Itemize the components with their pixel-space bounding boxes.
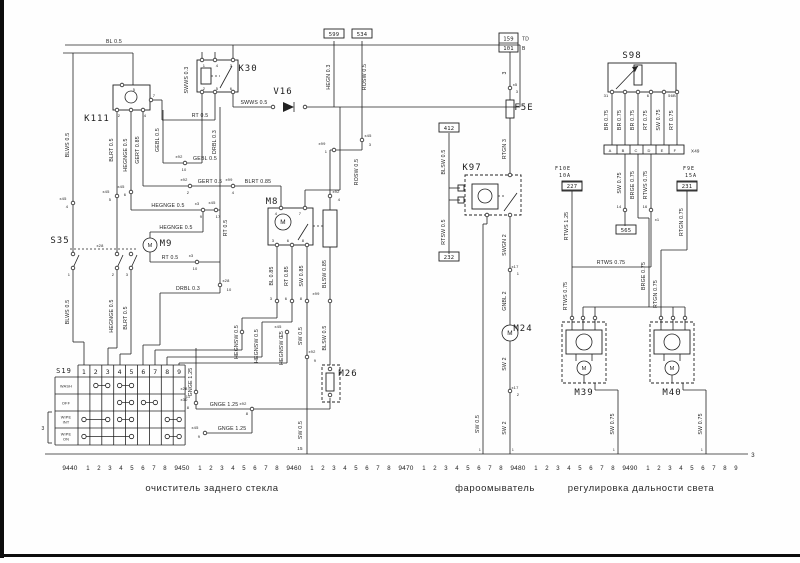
wire-label: SW 0.75 bbox=[610, 413, 616, 434]
pin-label: x45 bbox=[274, 324, 282, 329]
s19-row-label: OFF bbox=[62, 402, 71, 406]
wire-label: ROSW 0.5 bbox=[362, 64, 368, 90]
junction-box-side: TD bbox=[522, 37, 529, 43]
connector bbox=[508, 86, 512, 90]
wire-label: RTWS 0.75 bbox=[597, 260, 626, 266]
pin bbox=[213, 58, 217, 62]
track-minor: 8 bbox=[387, 466, 391, 472]
track-minor: 6 bbox=[141, 466, 145, 472]
wire-label: SW 2 bbox=[502, 357, 508, 370]
wire-label: DRBL 0.3 bbox=[176, 286, 200, 292]
connector bbox=[183, 161, 187, 165]
wire-label: SW 2 bbox=[502, 421, 508, 434]
pin-label: x92 bbox=[308, 349, 316, 354]
pin bbox=[328, 367, 332, 371]
s19-col-header: 9 bbox=[177, 368, 181, 376]
pin-label: x99 bbox=[225, 177, 233, 182]
pin-label: 3 bbox=[270, 296, 273, 301]
s19-contact bbox=[106, 383, 110, 387]
pin-label: 4 bbox=[144, 113, 147, 118]
component-label-S19: S19 bbox=[56, 367, 72, 375]
track-minor: 1 bbox=[86, 466, 90, 472]
wire-label: HEGNGE 0.5 bbox=[151, 203, 184, 209]
pin-label: 18 bbox=[279, 333, 284, 338]
pin-label: x1 bbox=[655, 217, 660, 222]
wire-label: BR 0.75 bbox=[604, 110, 610, 130]
pin-label: x28 bbox=[180, 386, 188, 391]
wire-label: SW 0.5 bbox=[298, 421, 304, 439]
pin-label: 4 bbox=[275, 211, 278, 216]
ref-box-label: 565 bbox=[621, 228, 632, 234]
pin-label: 8 bbox=[302, 238, 305, 243]
wiring-diagram: MMMMMABCDEFX49K111K30V16S35M9M8M26S19K97… bbox=[0, 0, 800, 558]
connector bbox=[195, 260, 199, 264]
pin-label: x28 bbox=[96, 243, 104, 248]
component-label-M9: M9 bbox=[160, 239, 173, 249]
wire-label: HEGNGE 0.5 bbox=[123, 138, 129, 171]
pin-label: 4 bbox=[66, 204, 69, 209]
component-label-M24: M24 bbox=[513, 324, 532, 334]
track-minor: 7 bbox=[600, 466, 604, 472]
pin-label: 6 bbox=[124, 192, 127, 197]
wire-label: BLSW 0.5 bbox=[322, 326, 328, 351]
s19-row-label: ON bbox=[63, 438, 69, 442]
pin bbox=[71, 266, 75, 270]
pin bbox=[275, 243, 279, 247]
pin-label: 56B bbox=[668, 93, 676, 98]
pin bbox=[305, 243, 309, 247]
wire-label: GEBL 0.5 bbox=[193, 156, 217, 162]
pin-label: 6 bbox=[647, 93, 650, 98]
track-minor: 6 bbox=[701, 466, 705, 472]
pin bbox=[593, 316, 597, 320]
pin bbox=[290, 243, 294, 247]
scan-edge-bottom bbox=[0, 554, 800, 557]
pin bbox=[71, 252, 75, 256]
wire-label: HEGNGE 0.5 bbox=[109, 299, 115, 332]
ref-box-label: 412 bbox=[444, 126, 455, 132]
pin bbox=[271, 105, 275, 109]
connector bbox=[649, 208, 653, 212]
connector bbox=[129, 190, 133, 194]
wire-label: BRGE 0.75 bbox=[630, 171, 636, 199]
pin-label: x17 bbox=[511, 385, 519, 390]
s19-col-header: 6 bbox=[141, 368, 145, 376]
pin bbox=[662, 90, 666, 94]
s19-row-label: WIPE bbox=[61, 433, 72, 437]
pin-label: 7 bbox=[299, 211, 302, 216]
pin-label: 9 bbox=[200, 214, 203, 219]
s19-contact bbox=[117, 383, 121, 387]
track-minor: 1 bbox=[310, 466, 314, 472]
track-minor: 3 bbox=[444, 466, 448, 472]
wire-label: SW 0.5 bbox=[298, 327, 304, 345]
component-label-M8: M8 bbox=[266, 197, 279, 207]
track-minor: 6 bbox=[365, 466, 369, 472]
track-end-mark: 3 bbox=[751, 453, 755, 459]
track-minor: 3 bbox=[556, 466, 560, 472]
track-decade: 9480 bbox=[510, 465, 525, 472]
wire-label: SWGN 2 bbox=[502, 234, 508, 256]
wire-label: RTGN 0.75 bbox=[653, 280, 659, 308]
wire bbox=[220, 66, 232, 88]
s19-contact bbox=[129, 417, 133, 421]
pin-label: x17 bbox=[511, 264, 519, 269]
track-minor: 8 bbox=[499, 466, 503, 472]
pin bbox=[279, 206, 283, 210]
pin-label: 5 bbox=[133, 87, 136, 92]
pin-label: 2 bbox=[118, 113, 121, 118]
wire-label: RT 0.75 bbox=[643, 110, 649, 130]
motor-M39-letter: M bbox=[582, 366, 587, 372]
track-minor: 5 bbox=[242, 466, 246, 472]
pin-label: 8 bbox=[246, 411, 249, 416]
relay-K30-coil bbox=[201, 68, 211, 84]
connector bbox=[332, 148, 336, 152]
pin-label: 16 bbox=[643, 204, 648, 209]
strip-label: X49 bbox=[691, 149, 700, 154]
motor-M9-letter: M bbox=[148, 243, 153, 249]
s19-col-header: 7 bbox=[153, 368, 157, 376]
ref-box-label: 534 bbox=[357, 32, 368, 38]
track-minor: 2 bbox=[657, 466, 661, 472]
track-minor: 6 bbox=[589, 466, 593, 472]
s19-contact bbox=[117, 417, 121, 421]
pin-label: 8 bbox=[187, 405, 190, 410]
wire-label: BLSW 0.5 bbox=[441, 150, 447, 175]
pin-label: 7 bbox=[153, 93, 156, 98]
wire-label: 3 bbox=[502, 71, 508, 74]
pin-label: 1 bbox=[203, 63, 206, 68]
pin bbox=[231, 58, 235, 62]
pin bbox=[649, 90, 653, 94]
track-minor: 7 bbox=[488, 466, 492, 472]
wire-label: SW 0.75 bbox=[698, 413, 704, 434]
pin bbox=[683, 316, 687, 320]
track-minor: 2 bbox=[209, 466, 213, 472]
component-label-F5E: F5E bbox=[514, 103, 533, 113]
wire-label: RTWS 0.75 bbox=[563, 282, 569, 311]
component-label-M39: M39 bbox=[574, 388, 593, 398]
track-mark: 1 bbox=[512, 448, 514, 452]
wire-label: RT 0.5 bbox=[162, 255, 179, 261]
connector-strip bbox=[604, 145, 684, 154]
connector bbox=[328, 194, 332, 198]
pin-label: x99 bbox=[318, 141, 326, 146]
track-decade: 9440 bbox=[62, 465, 77, 472]
pin-label: 3 bbox=[126, 272, 129, 277]
track-minor: 3 bbox=[332, 466, 336, 472]
relay-K97-motor bbox=[478, 189, 492, 203]
wire-label: SW 0.85 bbox=[299, 265, 305, 286]
wire-label: SW 0.75 bbox=[656, 109, 662, 130]
pin-label: 3 bbox=[369, 142, 372, 147]
track-decade: 9490 bbox=[622, 465, 637, 472]
component-label-S35: S35 bbox=[50, 236, 69, 246]
pin-label: x45 bbox=[208, 200, 216, 205]
fuse-F5E-symbol bbox=[506, 100, 514, 118]
wire-label: BR 0.75 bbox=[617, 110, 623, 130]
wire-label: HEGNSW 0.5 bbox=[254, 329, 260, 363]
pin bbox=[115, 252, 119, 256]
pin-label: 2 bbox=[517, 392, 520, 397]
connector bbox=[360, 138, 364, 142]
wire-label: GNBL 2 bbox=[502, 291, 508, 310]
component-label-10A: 10A bbox=[559, 173, 571, 179]
diode-V16 bbox=[283, 102, 294, 112]
component-label-S98: S98 bbox=[622, 51, 641, 61]
pin bbox=[485, 213, 489, 217]
wire-label: HEGNGE 0.5 bbox=[159, 225, 192, 231]
pin-label: x45 bbox=[102, 189, 110, 194]
track-minor: 7 bbox=[712, 466, 716, 472]
track-mark: 1 bbox=[701, 448, 703, 452]
pin-label: 6 bbox=[287, 238, 290, 243]
wire-label: GNGE 1.25 bbox=[210, 402, 239, 408]
track-minor: 1 bbox=[422, 466, 426, 472]
pump-M26-resistor bbox=[326, 373, 334, 391]
component-label-K111: K111 bbox=[84, 114, 110, 124]
pin-label: 9 bbox=[198, 434, 201, 439]
wire-label: RT 0.5 bbox=[192, 113, 209, 119]
connector bbox=[623, 208, 627, 212]
connector bbox=[290, 299, 294, 303]
pin-label: x45 bbox=[191, 425, 199, 430]
pin-label: x92 bbox=[332, 189, 340, 194]
strip-letter: C bbox=[634, 148, 637, 153]
s19-contact bbox=[82, 417, 86, 421]
component-label-15A: 15A bbox=[685, 173, 697, 179]
connector bbox=[218, 283, 222, 287]
track-mark: 1 bbox=[613, 448, 615, 452]
connector bbox=[194, 390, 198, 394]
s19-contact bbox=[177, 434, 181, 438]
pin-label: 31 bbox=[604, 93, 609, 98]
track-decade: 9470 bbox=[398, 465, 413, 472]
connector bbox=[275, 299, 279, 303]
connector bbox=[194, 401, 198, 405]
s19-contact bbox=[165, 434, 169, 438]
s19-col-header: 2 bbox=[94, 368, 98, 376]
track-decade: 9460 bbox=[286, 465, 301, 472]
wire-label: RTGN 0.75 bbox=[679, 208, 685, 236]
pin-label: x3 bbox=[189, 253, 194, 258]
track-minor: 5 bbox=[130, 466, 134, 472]
caption-headlight-washer: фароомыватель bbox=[455, 483, 535, 494]
s19-contact bbox=[165, 417, 169, 421]
s19-contact bbox=[117, 400, 121, 404]
pin bbox=[570, 316, 574, 320]
connector bbox=[115, 194, 119, 198]
track-minor: 7 bbox=[264, 466, 268, 472]
pin-label: 3 bbox=[516, 89, 519, 94]
wire-label: SW 0.75 bbox=[617, 172, 623, 193]
pin bbox=[303, 105, 307, 109]
strip-letter: F bbox=[674, 148, 677, 153]
pin-label: x45 bbox=[59, 196, 67, 201]
pin bbox=[581, 316, 585, 320]
s19-col-header: 5 bbox=[129, 368, 133, 376]
track-minor: 5 bbox=[578, 466, 582, 472]
component-label-F10E: F10E bbox=[555, 166, 571, 172]
pin-label: 4 bbox=[216, 63, 219, 68]
s19-col-header: 4 bbox=[118, 368, 122, 376]
component-label-M26: M26 bbox=[338, 369, 357, 379]
pin-label: 10 bbox=[193, 266, 198, 271]
wire-label: BR 0.75 bbox=[630, 110, 636, 130]
connector bbox=[201, 208, 205, 212]
relay-K111-timer bbox=[125, 91, 137, 103]
pin bbox=[149, 98, 153, 102]
component-label-K30: K30 bbox=[238, 64, 257, 74]
s19-contact bbox=[177, 417, 181, 421]
track-minor: 1 bbox=[198, 466, 202, 472]
junction-box-label: 159 bbox=[503, 37, 514, 43]
track-minor: 2 bbox=[433, 466, 437, 472]
wire-label: RT 0.5 bbox=[223, 220, 229, 237]
track-minor: 2 bbox=[97, 466, 101, 472]
connector bbox=[240, 330, 244, 334]
wire-label: BLRT 0.85 bbox=[245, 179, 271, 185]
wire bbox=[504, 193, 517, 211]
wire-label: RT 0.85 bbox=[284, 266, 290, 286]
pin-label: x28 bbox=[222, 278, 230, 283]
track-minor: 4 bbox=[119, 466, 123, 472]
s19-contact bbox=[129, 383, 133, 387]
connector bbox=[250, 407, 254, 411]
ref-box-label: 232 bbox=[444, 255, 455, 261]
component-label-M40: M40 bbox=[662, 388, 681, 398]
connector bbox=[305, 355, 309, 359]
scan-edge-left bbox=[0, 0, 4, 558]
track-minor: 4 bbox=[455, 466, 459, 472]
pin bbox=[636, 90, 640, 94]
pin bbox=[115, 108, 119, 112]
pin-label: 10 bbox=[182, 167, 187, 172]
pin-label: 4 bbox=[232, 190, 235, 195]
track-minor: 2 bbox=[321, 466, 325, 472]
wire-label: HEGN 0.3 bbox=[326, 64, 332, 89]
wire-label: BL 0.85 bbox=[269, 266, 275, 285]
connector bbox=[231, 184, 235, 188]
pin bbox=[200, 58, 204, 62]
pin-label: 3 bbox=[230, 63, 233, 68]
wire-label: RTWS 0.75 bbox=[643, 171, 649, 200]
wire-label: ROSW 0.5 bbox=[354, 159, 360, 185]
pin bbox=[120, 83, 124, 87]
pin-label: 3 bbox=[272, 238, 275, 243]
wiring-diagram-page: MMMMMABCDEFX49K111K30V16S35M9M8M26S19K97… bbox=[0, 0, 800, 558]
s19-col-header: 1 bbox=[82, 368, 86, 376]
wire-label: SWWS 0.5 bbox=[241, 100, 268, 106]
wire-label: GNGE 1.25 bbox=[188, 368, 194, 397]
connector bbox=[214, 208, 218, 212]
wire-label: BLSW 0.85 bbox=[322, 260, 328, 288]
ref-box-label: 231 bbox=[682, 184, 693, 190]
wire-label: SWWS 0.3 bbox=[184, 67, 190, 94]
track-minor: 8 bbox=[163, 466, 167, 472]
pin-label: x92 bbox=[239, 401, 247, 406]
track-minor: 4 bbox=[679, 466, 683, 472]
connector bbox=[71, 201, 75, 205]
track-mark: 1 bbox=[479, 448, 481, 452]
track-mark: 15 bbox=[297, 446, 303, 451]
track-minor: 5 bbox=[466, 466, 470, 472]
connector bbox=[285, 330, 289, 334]
pin-label: 1 bbox=[517, 271, 520, 276]
component-label-K97: K97 bbox=[462, 163, 481, 173]
track-minor: 4 bbox=[231, 466, 235, 472]
pin-label: x30 bbox=[180, 397, 188, 402]
track-minor: 7 bbox=[376, 466, 380, 472]
junction-box-label: 101 bbox=[503, 46, 514, 52]
strip-letter: D bbox=[647, 148, 650, 153]
pin bbox=[328, 393, 332, 397]
pin bbox=[508, 213, 512, 217]
track-minor: 4 bbox=[567, 466, 571, 472]
pin-label: x92 bbox=[180, 177, 188, 182]
pin-label: x5 bbox=[513, 82, 518, 87]
pin-label: x3 bbox=[195, 201, 200, 206]
s19-contact bbox=[141, 400, 145, 404]
wire-label: BLWS 0.5 bbox=[65, 300, 71, 325]
wire-label: RTGN 3 bbox=[502, 139, 508, 159]
track-decade: 9450 bbox=[174, 465, 189, 472]
pin-label: 17 bbox=[216, 214, 221, 219]
s19-side-mark: 3 bbox=[42, 426, 45, 432]
component-label-F9E: F9E bbox=[683, 166, 695, 172]
wire-label: GERT 0.5 bbox=[198, 179, 222, 185]
s19-contact bbox=[129, 400, 133, 404]
wire-label: BLWS 0.5 bbox=[65, 133, 71, 158]
caption-headlight-leveling: регулировка дальности света bbox=[568, 483, 715, 494]
connector bbox=[328, 299, 332, 303]
track-minor: 6 bbox=[477, 466, 481, 472]
track-minor: 3 bbox=[108, 466, 112, 472]
pin-label: 2 bbox=[203, 86, 206, 91]
wire-label: BL 0.5 bbox=[106, 39, 122, 45]
s19-row-label: INT bbox=[63, 421, 70, 425]
pin bbox=[303, 206, 307, 210]
strip-letter: A bbox=[609, 148, 612, 153]
pin-label: 2 bbox=[187, 190, 190, 195]
s19-col-header: 8 bbox=[165, 368, 169, 376]
pin bbox=[610, 90, 614, 94]
s19-contact bbox=[129, 434, 133, 438]
track-minor: 8 bbox=[723, 466, 727, 472]
connector bbox=[203, 431, 207, 435]
pin-label: 1 bbox=[325, 149, 328, 154]
pot-M39 bbox=[576, 334, 592, 350]
pin bbox=[623, 90, 627, 94]
s19-contact bbox=[82, 434, 86, 438]
track-minor: 9 bbox=[734, 466, 738, 472]
track-minor: 2 bbox=[545, 466, 549, 472]
wire-label: BLRT 0.5 bbox=[109, 138, 115, 161]
strip-letter: B bbox=[622, 148, 625, 153]
track-minor: 7 bbox=[152, 466, 156, 472]
pin bbox=[141, 108, 145, 112]
s19-contact bbox=[94, 383, 98, 387]
caption-rear-wiper: очиститель заднего стекла bbox=[145, 483, 278, 494]
connector bbox=[188, 184, 192, 188]
pin-label: 10 bbox=[227, 287, 232, 292]
pin bbox=[671, 316, 675, 320]
pin bbox=[129, 252, 133, 256]
pin bbox=[508, 173, 512, 177]
wire-label: GERT 0.85 bbox=[135, 136, 141, 164]
wire-label: RTSW 0.5 bbox=[441, 219, 447, 244]
